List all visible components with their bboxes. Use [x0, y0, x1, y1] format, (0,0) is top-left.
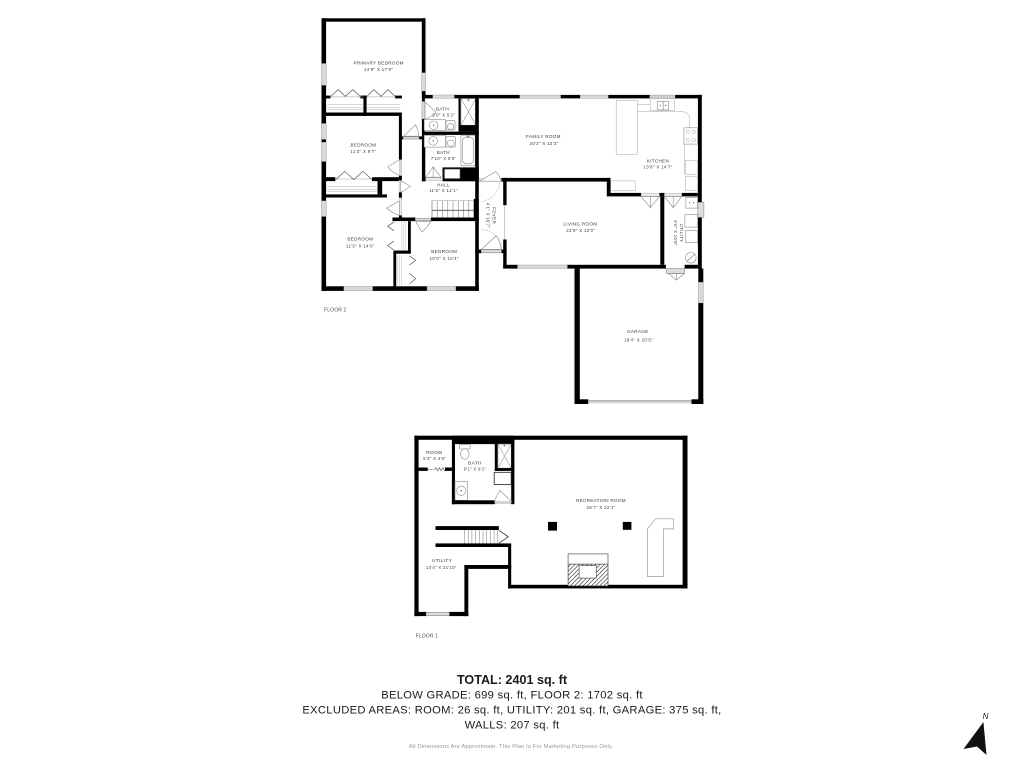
svg-text:KITCHEN: KITCHEN	[647, 159, 669, 164]
svg-text:14'9" X 17'9": 14'9" X 17'9"	[364, 67, 393, 72]
svg-text:FAMILY ROOM: FAMILY ROOM	[526, 134, 561, 139]
svg-text:5'3" X 4'6": 5'3" X 4'6"	[423, 456, 446, 461]
svg-text:BATH: BATH	[437, 150, 450, 155]
svg-text:BATH: BATH	[436, 106, 449, 111]
svg-text:UTILITY: UTILITY	[679, 224, 684, 243]
svg-text:7'10" X 6'9": 7'10" X 6'9"	[431, 156, 457, 161]
svg-text:2'0" X 5'2": 2'0" X 5'2"	[432, 113, 455, 118]
svg-text:BEDROOM: BEDROOM	[347, 237, 373, 242]
svg-text:23'9" X 13'0": 23'9" X 13'0"	[566, 228, 595, 233]
svg-text:20'2" X 12'3": 20'2" X 12'3"	[529, 141, 558, 146]
svg-text:5'6" X 10'8": 5'6" X 10'8"	[673, 220, 678, 246]
svg-text:10'0" X 10'4": 10'0" X 10'4"	[430, 256, 459, 261]
svg-text:4'1" X 10'7": 4'1" X 10'7"	[486, 203, 491, 229]
svg-text:BATH: BATH	[468, 461, 482, 467]
svg-text:N: N	[983, 712, 989, 721]
svg-text:11'3" X 14'0": 11'3" X 14'0"	[346, 243, 375, 248]
svg-text:11'3" X 9'7": 11'3" X 9'7"	[350, 149, 376, 154]
svg-text:TOTAL: 2401 sq. ft: TOTAL: 2401 sq. ft	[457, 673, 568, 687]
svg-text:WALLS: 207 sq. ft: WALLS: 207 sq. ft	[465, 719, 560, 731]
svg-text:BEDROOM: BEDROOM	[431, 249, 457, 254]
svg-text:13'8" X 14'7": 13'8" X 14'7"	[643, 165, 672, 170]
svg-text:EXCLUDED AREAS: ROOM: 26 sq. f: EXCLUDED AREAS: ROOM: 26 sq. ft, UTILITY…	[302, 705, 721, 717]
svg-text:18'4" X 20'5": 18'4" X 20'5"	[624, 337, 653, 342]
svg-text:UTILITY: UTILITY	[432, 558, 452, 564]
svg-text:9'1" X 9'1": 9'1" X 9'1"	[464, 467, 487, 472]
svg-text:FLOOR 1: FLOOR 1	[416, 634, 439, 640]
svg-text:FLOOR 2: FLOOR 2	[324, 307, 347, 313]
svg-text:28'7" X 22'1": 28'7" X 22'1"	[586, 505, 615, 510]
svg-text:BEDROOM: BEDROOM	[350, 142, 376, 147]
svg-text:14'4" X 21'10": 14'4" X 21'10"	[426, 565, 457, 570]
svg-text:HALL: HALL	[437, 183, 450, 188]
svg-text:LIVING ROOM: LIVING ROOM	[563, 221, 597, 226]
svg-text:RECREATION ROOM: RECREATION ROOM	[576, 498, 626, 503]
svg-text:All Dimensions Are Approximate: All Dimensions Are Approximate. This Pla…	[409, 744, 614, 750]
svg-text:11'5" X 12'1": 11'5" X 12'1"	[429, 188, 458, 193]
svg-text:PRIMARY BEDROOM: PRIMARY BEDROOM	[353, 61, 403, 66]
svg-text:BELOW GRADE: 699 sq. ft, FLOOR: BELOW GRADE: 699 sq. ft, FLOOR 2: 1702 s…	[381, 690, 643, 702]
svg-text:FOYER: FOYER	[492, 207, 497, 224]
svg-text:GARAGE: GARAGE	[627, 329, 648, 334]
